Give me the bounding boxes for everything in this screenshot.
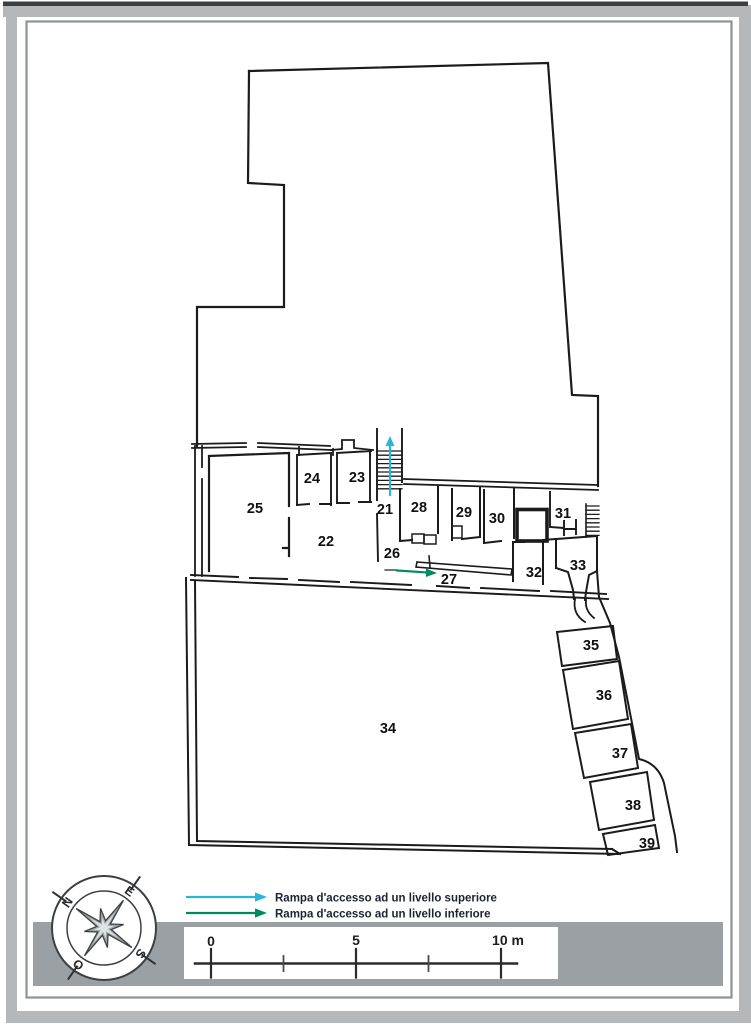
floor-plan: 21222324252627282930313233343536373839 bbox=[186, 63, 677, 855]
plan-figure: 0 5 10 m Rampa d'accesso ad un livello s… bbox=[0, 0, 751, 1024]
room-label-22: 22 bbox=[318, 534, 334, 550]
band-bottom-wall-lower bbox=[191, 580, 608, 599]
court-34-walls bbox=[186, 578, 620, 854]
room-label-24: 24 bbox=[304, 471, 320, 487]
scale-bar: 0 5 10 m bbox=[184, 927, 558, 979]
room-label-38: 38 bbox=[625, 798, 641, 814]
room-28-threshold-b bbox=[424, 535, 436, 544]
room-label-34: 34 bbox=[380, 721, 396, 737]
frame-top-dark-edge bbox=[3, 2, 748, 7]
room-label-29: 29 bbox=[456, 505, 472, 521]
room-label-28: 28 bbox=[411, 500, 427, 516]
ramp-up-arrowhead bbox=[255, 892, 267, 901]
room-38-walls bbox=[590, 772, 654, 830]
frame-left bbox=[6, 5, 17, 1019]
rooms-24-23-doors bbox=[297, 502, 371, 505]
legend-label-ramp-up: Rampa d'accesso ad un livello superiore bbox=[275, 893, 497, 905]
band-top-wall-right bbox=[404, 479, 598, 490]
band-top-wall-upper bbox=[192, 443, 330, 446]
band-top-wall-notch bbox=[331, 440, 373, 450]
plan-ramp-down-arrow bbox=[397, 571, 427, 573]
scale-label-10m: 10 m bbox=[492, 932, 524, 948]
room-label-25: 25 bbox=[247, 501, 263, 517]
room-label-26: 26 bbox=[384, 546, 400, 562]
room-29-feature bbox=[452, 526, 462, 538]
band-top-wall-lower bbox=[192, 447, 331, 450]
ramp-down-arrowhead bbox=[255, 908, 267, 917]
legend: Rampa d'accesso ad un livello superiore … bbox=[186, 892, 497, 920]
ramp-31-treads bbox=[586, 506, 599, 535]
room-label-33: 33 bbox=[570, 558, 586, 574]
room-label-30: 30 bbox=[489, 511, 505, 527]
impluvium-basin bbox=[517, 510, 547, 542]
room-label-39: 39 bbox=[639, 836, 655, 852]
frame-top bbox=[3, 5, 748, 17]
frame-right bbox=[739, 5, 751, 1019]
room-label-37: 37 bbox=[612, 746, 628, 762]
scale-label-5: 5 bbox=[352, 932, 360, 948]
plan-ramp-down-arrowhead bbox=[426, 569, 437, 578]
legend-item-ramp-down: Rampa d'accesso ad un livello inferiore bbox=[186, 908, 491, 920]
room-37-walls bbox=[575, 724, 638, 778]
room-label-23: 23 bbox=[349, 470, 365, 486]
room-label-32: 32 bbox=[526, 565, 542, 581]
room-label-27: 27 bbox=[441, 572, 457, 588]
legend-item-ramp-up: Rampa d'accesso ad un livello superiore bbox=[186, 892, 497, 904]
scanned-plan-page: 0 5 10 m Rampa d'accesso ad un livello s… bbox=[0, 0, 751, 1024]
legend-label-ramp-down: Rampa d'accesso ad un livello inferiore bbox=[275, 909, 491, 921]
scale-label-0: 0 bbox=[207, 933, 215, 949]
room-label-21: 21 bbox=[377, 502, 393, 518]
passage-33-35 bbox=[574, 599, 594, 622]
plan-ramp-up-arrowhead bbox=[386, 436, 395, 446]
building-outline-right bbox=[249, 63, 598, 486]
room-28-threshold-a bbox=[412, 534, 424, 543]
frame-bottom bbox=[6, 1011, 751, 1023]
room-label-31: 31 bbox=[555, 506, 571, 522]
room-label-35: 35 bbox=[583, 638, 599, 654]
building-outline-left bbox=[197, 71, 284, 446]
band-left-wall bbox=[195, 446, 202, 576]
room-label-36: 36 bbox=[596, 688, 612, 704]
